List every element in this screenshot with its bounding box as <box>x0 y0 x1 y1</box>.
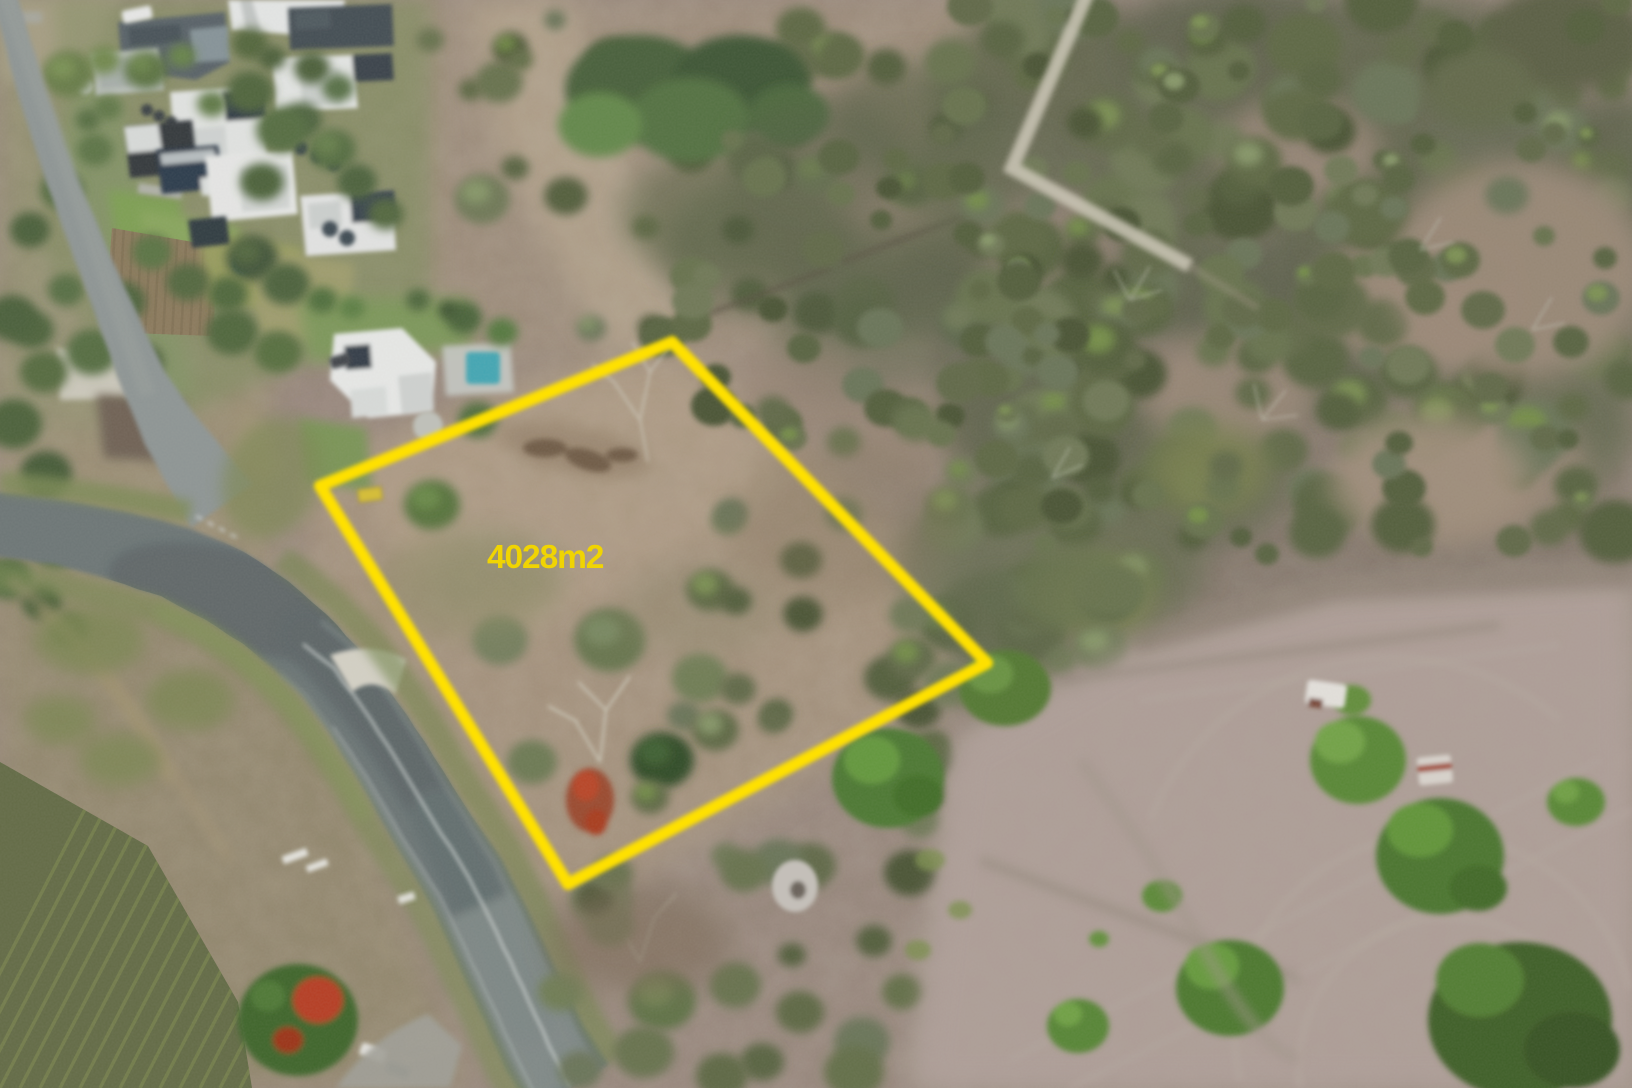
svg-text:4028m2: 4028m2 <box>487 539 604 576</box>
